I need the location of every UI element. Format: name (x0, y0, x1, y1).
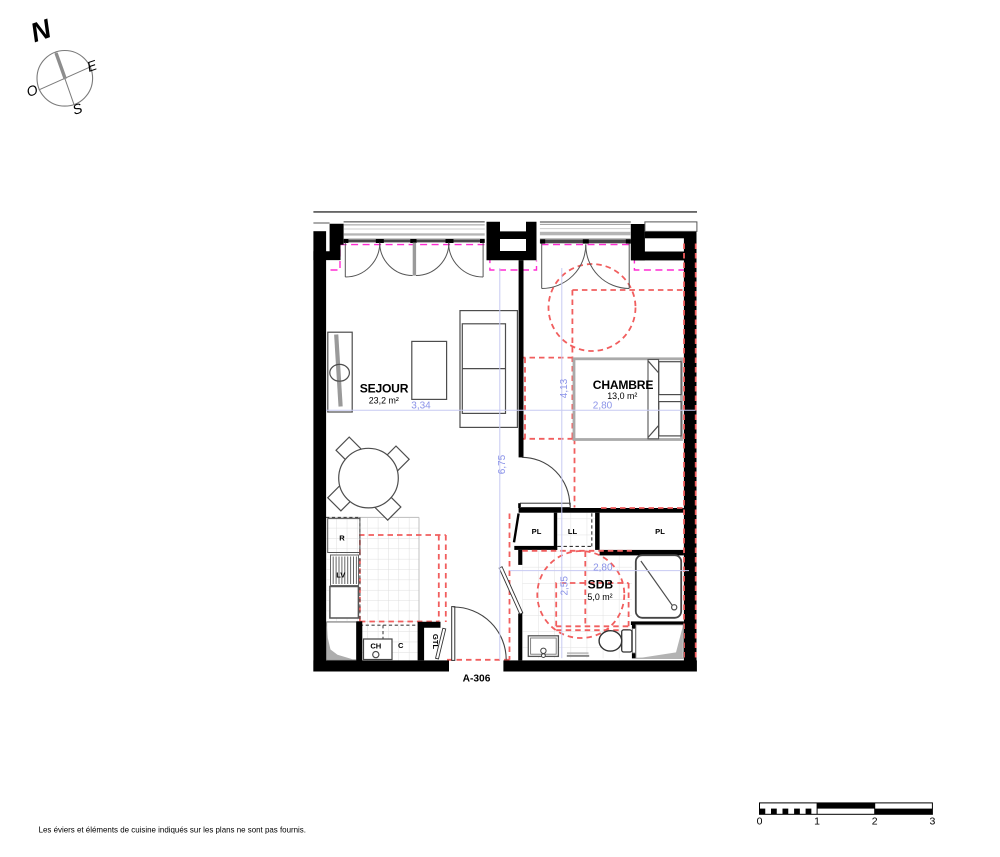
svg-text:5,0 m²: 5,0 m² (587, 592, 612, 602)
svg-text:R: R (339, 534, 345, 543)
svg-text:PL: PL (532, 527, 542, 536)
svg-text:SDB: SDB (588, 577, 614, 591)
svg-text:E: E (85, 56, 100, 74)
svg-text:N: N (27, 13, 56, 48)
svg-text:4,13: 4,13 (559, 378, 570, 398)
svg-text:3,34: 3,34 (411, 400, 431, 411)
svg-text:A-306: A-306 (463, 674, 491, 685)
svg-text:CH: CH (370, 641, 381, 650)
svg-text:2,55: 2,55 (559, 576, 570, 596)
svg-text:Les éviers et éléments de cuis: Les éviers et éléments de cuisine indiqu… (39, 825, 306, 834)
svg-text:23,2 m²: 23,2 m² (369, 395, 399, 405)
svg-text:SEJOUR: SEJOUR (360, 382, 409, 396)
svg-text:6,75: 6,75 (497, 454, 508, 474)
svg-text:GTL: GTL (431, 634, 440, 650)
svg-text:0: 0 (757, 816, 763, 828)
svg-text:13,0 m²: 13,0 m² (607, 391, 637, 401)
svg-text:PL: PL (655, 527, 665, 536)
svg-text:1: 1 (814, 816, 820, 828)
svg-text:2: 2 (872, 816, 878, 828)
svg-text:2,80: 2,80 (593, 400, 613, 411)
svg-text:S: S (70, 99, 85, 117)
svg-text:LL: LL (568, 527, 578, 536)
svg-text:LV: LV (336, 571, 346, 580)
svg-text:2,80: 2,80 (593, 562, 613, 573)
svg-text:C: C (398, 641, 404, 650)
svg-text:3: 3 (929, 816, 935, 828)
